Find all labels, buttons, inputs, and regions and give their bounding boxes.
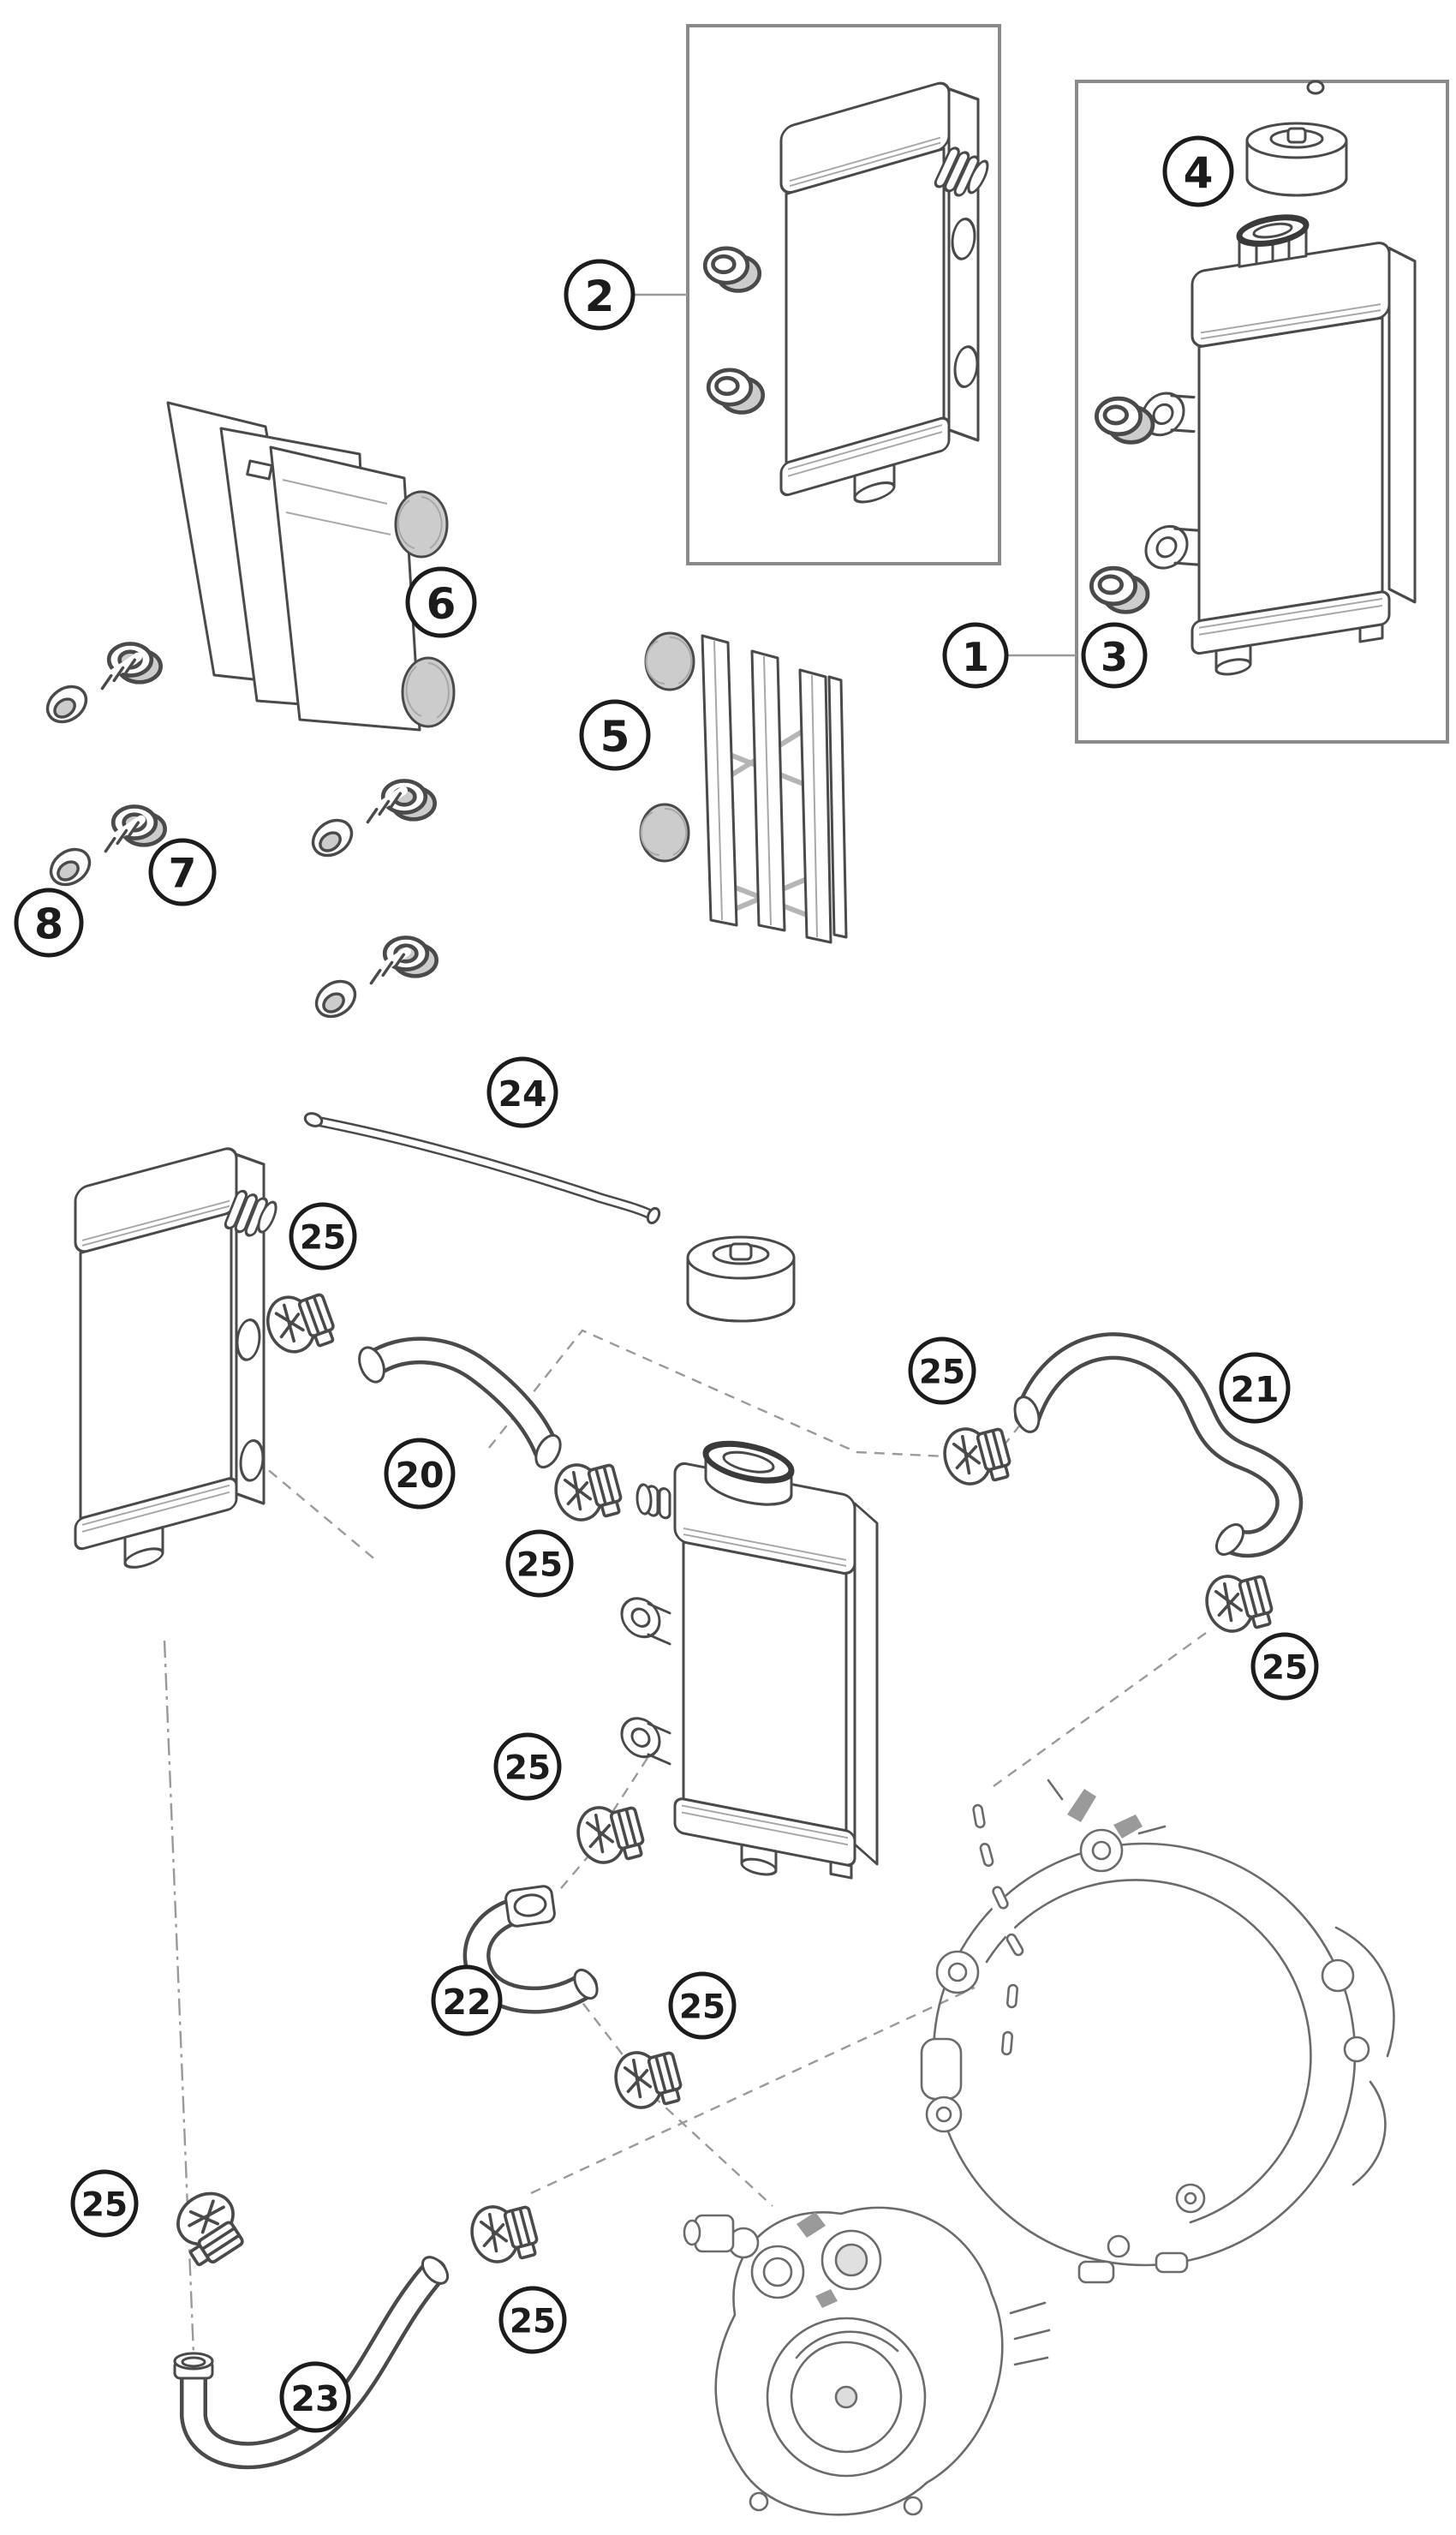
callout-7: 7 (151, 840, 214, 904)
callout-label: 25 (516, 1546, 563, 1585)
callout-1: 1 (945, 625, 1006, 686)
callout-2: 2 (566, 261, 633, 328)
banjo-fitting (1048, 1780, 1165, 1871)
hose-clamp (550, 1456, 624, 1528)
callout-24: 24 (489, 1059, 556, 1126)
water-pump-assembly (684, 2208, 1049, 2514)
hose-clamp (466, 2197, 540, 2269)
radiator-guard (168, 403, 454, 730)
callout-label: 25 (510, 2303, 556, 2341)
callout-label: 24 (498, 1073, 546, 1115)
callout-25: 25 (496, 1735, 559, 1798)
callout-label: 7 (169, 851, 197, 898)
radiator-left-lower (75, 1134, 282, 1584)
flange-bolt (41, 657, 138, 729)
callout-6: 6 (408, 569, 474, 636)
callout-25: 25 (1253, 1635, 1316, 1698)
callout-8: 8 (16, 890, 81, 955)
callout-25: 25 (508, 1532, 571, 1595)
flange-bolt (307, 791, 403, 863)
radiator-hose-short (355, 1344, 565, 1472)
vent-pipe (973, 1784, 1024, 2078)
callout-label: 25 (504, 1749, 551, 1788)
assembly-dashed-line (164, 1641, 194, 2354)
callout-label: 22 (442, 1982, 491, 2023)
cooling-system-parts-diagram: 1234567820212223242525252525252525 (0, 0, 1456, 2535)
callout-label: 25 (919, 1354, 965, 1392)
callout-25: 25 (910, 1339, 974, 1402)
radiator-left-upper (705, 68, 994, 527)
callout-label: 25 (81, 2186, 128, 2225)
callout-label: 6 (427, 579, 456, 629)
radiator-louver (641, 633, 846, 942)
callout-22: 22 (433, 1967, 500, 2034)
mounting-ear (1146, 522, 1197, 573)
assembly-dashed-line (557, 1853, 591, 1893)
assembly-dashed-line (255, 1459, 377, 1561)
callout-label: 25 (679, 1988, 725, 2027)
callout-label: 2 (585, 272, 615, 321)
mounting-ear (622, 1715, 670, 1764)
hose-clamp (572, 1798, 647, 1870)
callout-label: 20 (395, 1455, 444, 1496)
guard-boss (396, 492, 447, 557)
filler-neck (1239, 213, 1306, 266)
callout-4: 4 (1165, 138, 1232, 205)
callout-25: 25 (501, 2288, 564, 2352)
callout-label: 5 (600, 712, 630, 762)
callout-25: 25 (671, 1974, 734, 2037)
rubber-grommet (705, 248, 760, 291)
callout-label: 25 (1262, 1649, 1308, 1688)
radiator-cap (1247, 81, 1346, 195)
diagram-canvas: 1234567820212223242525252525252525 (0, 0, 1456, 2535)
assembly-dashed-line (653, 2096, 773, 2206)
callout-20: 20 (386, 1440, 453, 1507)
callout-21: 21 (1221, 1354, 1288, 1421)
guard-boss (403, 658, 454, 726)
flange-bolt (310, 952, 407, 1024)
callout-25: 25 (291, 1205, 355, 1268)
radiator-spout (637, 1483, 670, 1518)
callout-label: 21 (1230, 1369, 1279, 1410)
rubber-grommet (708, 370, 763, 413)
callout-3: 3 (1083, 625, 1145, 686)
clutch-cover (922, 1780, 1394, 2282)
callout-25: 25 (73, 2172, 136, 2235)
hose-clamp (939, 1420, 1013, 1492)
mounting-ear (622, 1595, 670, 1644)
reservoir-cap (688, 1215, 794, 1321)
assembly-dashed-line (531, 1988, 975, 2193)
callout-label: 4 (1184, 148, 1214, 198)
vent-hose (303, 1111, 661, 1225)
callout-5: 5 (582, 702, 648, 768)
hose-clamp (259, 1283, 339, 1361)
callout-label: 8 (34, 900, 63, 949)
callout-label: 1 (962, 634, 989, 680)
callout-label: 3 (1101, 634, 1128, 680)
callout-23: 23 (282, 2364, 349, 2430)
flange-bolt (45, 820, 141, 892)
rubber-grommet (1091, 568, 1148, 612)
hose-clamp (1201, 1567, 1275, 1639)
rubber-grommet (1096, 398, 1153, 442)
callout-label: 25 (300, 1219, 346, 1258)
hose-clamp (162, 2179, 257, 2275)
radiator-middle (622, 1421, 877, 1897)
callout-label: 23 (290, 2378, 339, 2419)
assembly-dashed-line (994, 1633, 1206, 1786)
radiator-right-upper (1091, 81, 1415, 688)
